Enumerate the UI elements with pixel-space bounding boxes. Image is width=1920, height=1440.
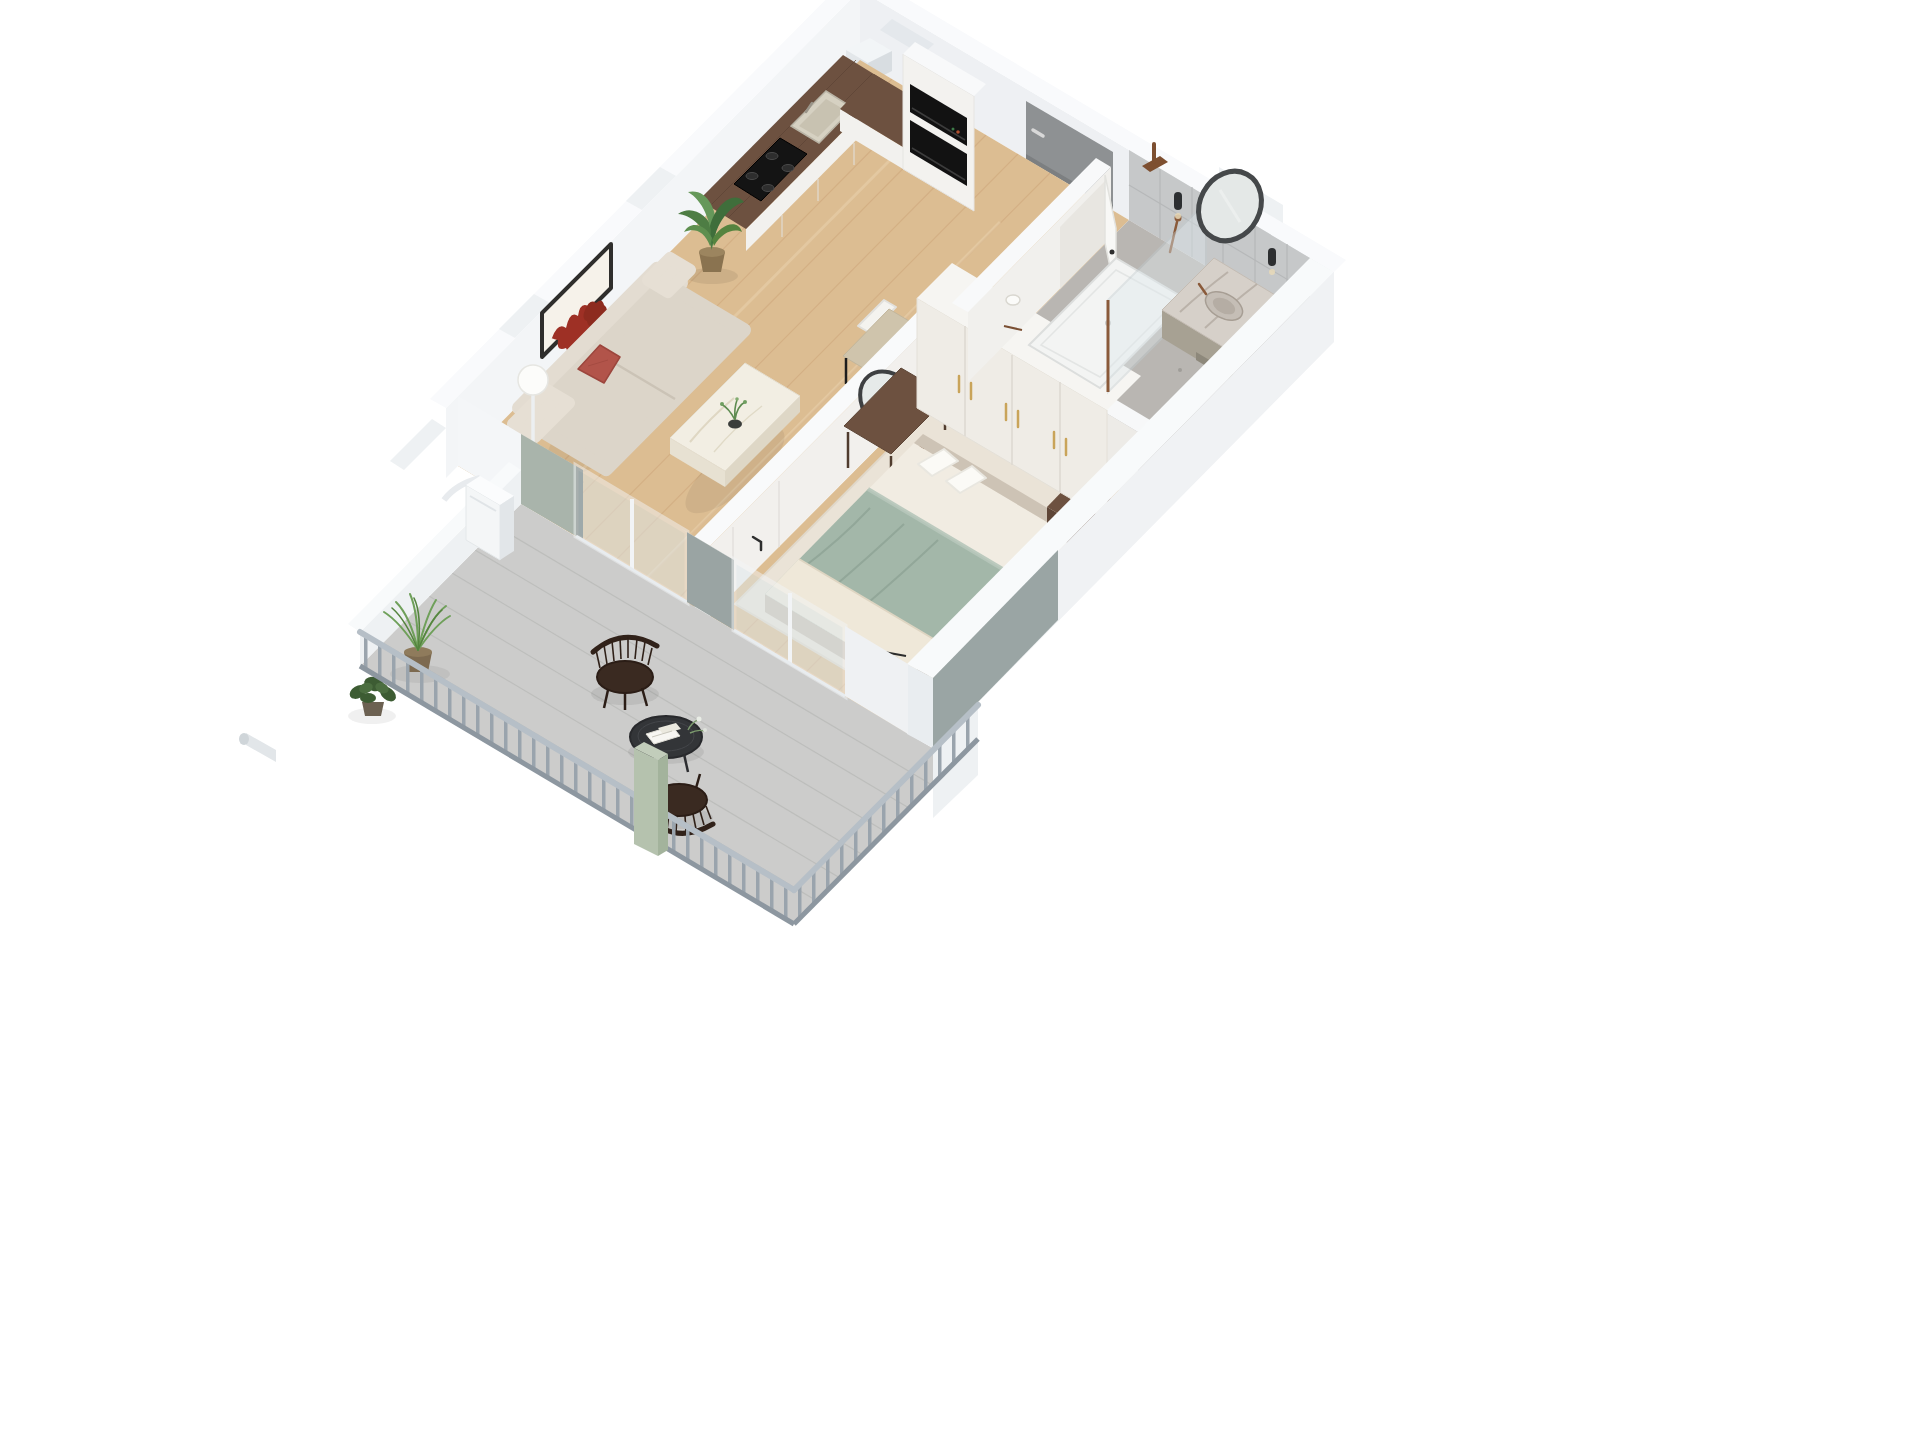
floorplan-render — [0, 0, 1920, 1440]
nw-wall-endcap — [390, 419, 446, 470]
floorplan-svg — [0, 0, 1920, 1440]
exterior-wall-pipe — [239, 733, 276, 762]
railing-pillar — [634, 742, 668, 856]
